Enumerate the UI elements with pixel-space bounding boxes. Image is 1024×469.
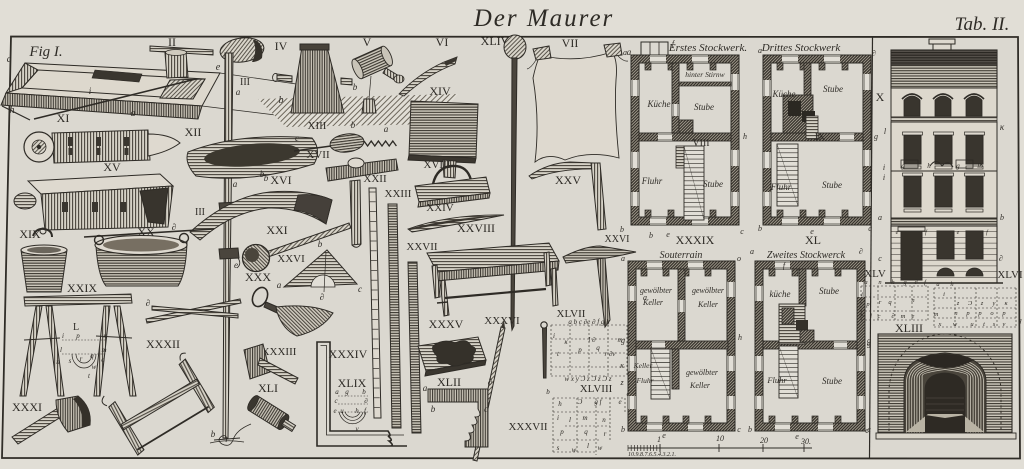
svg-text:c: c — [878, 254, 882, 263]
svg-text:a: a — [864, 279, 867, 286]
svg-text:a: a — [384, 124, 389, 134]
svg-text:r ∂v: r ∂v — [604, 350, 616, 358]
svg-text:i: i — [62, 332, 64, 340]
svg-text:Küche: Küche — [772, 89, 796, 99]
svg-text:e: e — [234, 260, 238, 270]
svg-text:b: b — [211, 429, 216, 439]
svg-text:30.: 30. — [800, 437, 811, 446]
svg-text:VI: VI — [436, 35, 449, 49]
svg-text:V: V — [363, 35, 372, 49]
svg-text:∂: ∂ — [172, 222, 176, 232]
svg-text:Fluhr: Fluhr — [635, 376, 653, 385]
svg-text:q: q — [90, 352, 94, 360]
svg-text:κ: κ — [620, 361, 624, 370]
svg-text:XVIII: XVIII — [424, 159, 451, 171]
svg-text:XXVII: XXVII — [406, 241, 437, 253]
svg-text:y: y — [992, 300, 996, 307]
svg-text:XV: XV — [103, 160, 121, 174]
svg-text:m: m — [101, 346, 106, 354]
svg-text:i: i — [883, 173, 885, 182]
svg-text:Erstes Stockwerk.: Erstes Stockwerk. — [668, 42, 747, 54]
svg-text:n: n — [954, 310, 957, 317]
svg-text:b: b — [748, 425, 752, 434]
svg-text:g: g — [874, 132, 878, 141]
svg-text:g f: g f — [594, 398, 602, 406]
svg-text:c: c — [295, 133, 299, 143]
svg-text:a: a — [621, 254, 625, 263]
svg-text:h: h — [558, 400, 562, 408]
svg-text:h: h — [743, 132, 747, 141]
svg-text:Fluhr: Fluhr — [641, 176, 663, 186]
svg-text:XXXIII: XXXIII — [262, 346, 297, 358]
svg-text:z: z — [956, 300, 960, 307]
svg-text:q: q — [584, 428, 588, 436]
svg-text:∂: ∂ — [872, 49, 876, 58]
svg-text:IV: IV — [275, 39, 288, 53]
svg-text:Fig I.: Fig I. — [28, 44, 62, 60]
svg-text:b: b — [353, 82, 358, 92]
svg-text:i: i — [861, 291, 863, 298]
svg-text:c: c — [868, 224, 872, 233]
svg-text:r: r — [604, 430, 607, 438]
svg-text:XLI: XLI — [258, 381, 278, 395]
svg-text:Stube: Stube — [823, 84, 843, 94]
svg-text:XXXIX: XXXIX — [676, 233, 715, 247]
svg-text:e: e — [666, 230, 670, 239]
svg-text:a: a — [878, 213, 882, 222]
svg-text:b: b — [279, 95, 284, 106]
svg-text:XIII: XIII — [308, 120, 327, 132]
svg-text:e: e — [618, 398, 621, 406]
svg-text:VII: VII — [562, 36, 579, 50]
svg-text:∂: ∂ — [320, 292, 324, 302]
svg-text:∂: ∂ — [364, 397, 368, 405]
svg-text:a: a — [277, 280, 282, 290]
svg-text:b: b — [621, 425, 625, 434]
svg-text:e: e — [957, 230, 960, 236]
svg-text:w x y Ɔ z Ɔ z Ɔ z: w x y Ɔ z Ɔ z Ɔ z — [564, 375, 611, 383]
svg-text:p: p — [75, 332, 80, 340]
svg-text:r: r — [80, 355, 83, 363]
svg-text:XLIII: XLIII — [895, 321, 923, 335]
svg-text:g: g — [867, 339, 871, 348]
svg-text:XLVI: XLVI — [997, 269, 1023, 281]
svg-text:b: b — [362, 388, 366, 396]
svg-text:b: b — [649, 231, 653, 240]
svg-text:VIII: VIII — [692, 138, 709, 149]
svg-text:∂: ∂ — [146, 298, 150, 308]
svg-text:l: l — [569, 416, 571, 424]
svg-text:h: h — [355, 407, 359, 415]
svg-text:gewölbter: gewölbter — [640, 286, 673, 295]
svg-text:w: w — [92, 363, 97, 371]
svg-text:m: m — [582, 414, 587, 422]
svg-text:p: p — [577, 346, 582, 354]
svg-text:c: c — [740, 227, 744, 236]
svg-text:l: l — [870, 313, 872, 320]
svg-text:κ: κ — [1000, 122, 1005, 132]
svg-text:i: i — [883, 163, 885, 172]
svg-text:g: g — [621, 336, 625, 345]
svg-text:XXXIV: XXXIV — [329, 347, 368, 361]
svg-text:a: a — [236, 87, 241, 97]
svg-text:XXXII: XXXII — [146, 337, 180, 351]
svg-text:b: b — [758, 224, 762, 233]
svg-text:w: w — [572, 446, 577, 454]
svg-text:z: z — [980, 300, 984, 307]
svg-text:g: g — [956, 162, 960, 170]
svg-text:b: b — [546, 388, 550, 396]
svg-text:b: b — [264, 173, 269, 183]
svg-text:n: n — [911, 297, 914, 304]
svg-text:Stube: Stube — [819, 286, 839, 296]
svg-text:h: h — [927, 162, 931, 170]
svg-text:XXVI: XXVI — [605, 234, 630, 245]
svg-text:1: 1 — [657, 435, 661, 444]
svg-text:XLVIII: XLVIII — [580, 383, 613, 395]
svg-text:s: s — [69, 357, 72, 365]
svg-text:n: n — [878, 279, 881, 286]
svg-text:XIV: XIV — [429, 84, 451, 98]
svg-text:XXVIII: XXVIII — [457, 221, 495, 235]
svg-text:e: e — [662, 431, 666, 440]
svg-text:XL: XL — [805, 233, 821, 247]
svg-text:w: w — [598, 444, 603, 452]
svg-text:Ɔ: Ɔ — [968, 300, 973, 307]
svg-text:Fluhr: Fluhr — [766, 375, 787, 385]
svg-text:Keller: Keller — [642, 298, 664, 307]
svg-text:a b c ∂e ∂ f g h: a b c ∂e ∂ f g h — [568, 318, 610, 326]
svg-text:∂: ∂ — [488, 377, 492, 387]
svg-text:∂: ∂ — [891, 313, 894, 320]
svg-text:a: a — [750, 247, 754, 256]
svg-text:c: c — [358, 284, 362, 294]
svg-text:b: b — [318, 239, 323, 249]
svg-text:e: e — [912, 313, 915, 320]
svg-text:Zweites Stockwerck: Zweites Stockwerck — [767, 250, 846, 261]
svg-text:i: i — [557, 414, 559, 422]
svg-text:Stube: Stube — [822, 180, 842, 190]
svg-text:e: e — [795, 432, 799, 441]
svg-text:XXVI: XXVI — [277, 253, 305, 265]
svg-text:c: c — [484, 404, 488, 414]
svg-text:a: a — [758, 46, 762, 55]
svg-text:m: m — [934, 311, 939, 318]
svg-text:∂: ∂ — [999, 254, 1003, 263]
svg-text:t: t — [983, 321, 985, 328]
svg-text:Ɔ: Ɔ — [578, 398, 583, 406]
svg-text:c: c — [7, 54, 12, 65]
svg-text:h: h — [10, 105, 15, 116]
svg-text:i: i — [553, 332, 555, 340]
svg-text:h: h — [891, 279, 894, 286]
svg-text:m: m — [901, 313, 906, 320]
svg-text:c: c — [737, 425, 741, 434]
svg-text:gewölbter: gewölbter — [692, 286, 725, 295]
svg-text:gewölbter: gewölbter — [686, 368, 719, 377]
svg-text:XXIII: XXIII — [385, 188, 412, 200]
svg-text:o: o — [101, 356, 105, 364]
svg-text:Küche: Küche — [647, 99, 671, 109]
svg-text:a: a — [233, 179, 238, 189]
svg-text:∂: ∂ — [914, 279, 917, 286]
svg-text:XXXVII: XXXVII — [508, 421, 547, 433]
svg-text:e: e — [333, 407, 336, 415]
svg-text:XXXV: XXXV — [429, 317, 464, 331]
svg-text:a: a — [131, 108, 136, 119]
svg-text:q: q — [596, 344, 600, 352]
svg-text:c: c — [878, 313, 881, 320]
svg-text:10: 10 — [716, 434, 724, 443]
svg-text:XVII: XVII — [306, 149, 330, 161]
svg-text:h: h — [950, 281, 953, 288]
svg-text:a: a — [423, 383, 428, 393]
svg-text:XII: XII — [185, 125, 202, 139]
svg-text:XXII: XXII — [363, 173, 387, 185]
svg-text:XXI: XXI — [266, 223, 287, 237]
svg-text:n: n — [602, 416, 606, 424]
svg-text:l ∂: l ∂ — [588, 336, 596, 344]
svg-text:XXV: XXV — [555, 173, 581, 187]
svg-text:Keller: Keller — [697, 300, 719, 309]
svg-text:c: c — [867, 425, 871, 434]
svg-text:XXXI: XXXI — [12, 400, 42, 414]
svg-text:Stube: Stube — [822, 376, 842, 386]
svg-text:b: b — [260, 169, 265, 179]
svg-text:u: u — [340, 407, 344, 415]
svg-text:Keller: Keller — [689, 381, 711, 390]
svg-text:III: III — [240, 77, 250, 88]
svg-text:Fluhr: Fluhr — [770, 182, 792, 192]
svg-text:Stube: Stube — [694, 102, 714, 112]
svg-text:e: e — [216, 62, 221, 73]
svg-text:b: b — [351, 120, 356, 130]
svg-text:o: o — [737, 254, 741, 263]
svg-text:XXIX: XXIX — [67, 281, 97, 295]
svg-text:XVI: XVI — [270, 173, 291, 187]
svg-text:XXIV: XXIV — [426, 202, 454, 214]
svg-text:e: e — [896, 230, 899, 236]
svg-text:hinter Stirnw: hinter Stirnw — [685, 70, 724, 79]
svg-text:XXX: XXX — [245, 270, 271, 284]
svg-text:XLII: XLII — [437, 375, 461, 389]
svg-text:g: g — [345, 388, 349, 396]
svg-text:X: X — [876, 90, 885, 104]
svg-text:lb: lb — [977, 162, 983, 170]
svg-text:b: b — [1000, 213, 1004, 222]
svg-text:küche: küche — [770, 289, 791, 299]
svg-text:s: s — [557, 444, 560, 452]
svg-text:IX: IX — [815, 132, 826, 143]
svg-text:b: b — [431, 404, 436, 414]
svg-text:Stube: Stube — [703, 179, 723, 189]
svg-text:x: x — [938, 321, 942, 328]
svg-text:10.9.8.7.6.5.4.3.2.1.: 10.9.8.7.6.5.4.3.2.1. — [628, 451, 676, 458]
svg-text:h: h — [738, 333, 742, 342]
svg-text:a: a — [335, 388, 339, 396]
svg-text:III: III — [195, 207, 205, 218]
svg-text:a: a — [623, 48, 627, 57]
svg-text:Tab. II.: Tab. II. — [955, 14, 1010, 35]
svg-text:v: v — [1003, 321, 1006, 328]
svg-text:Souterrain: Souterrain — [660, 250, 703, 261]
svg-text:i: i — [943, 291, 945, 298]
svg-text:Der Maurer: Der Maurer — [473, 5, 615, 32]
svg-text:g: g — [901, 162, 905, 170]
svg-text:20: 20 — [760, 436, 768, 445]
svg-text:Drittes Stockwerk: Drittes Stockwerk — [761, 42, 842, 54]
svg-text:p: p — [559, 428, 564, 436]
svg-text:Keller: Keller — [633, 361, 653, 370]
svg-text:∂: ∂ — [859, 247, 863, 256]
svg-text:l: l — [1018, 298, 1020, 305]
svg-text:XI: XI — [57, 111, 70, 125]
svg-text:l: l — [587, 442, 589, 450]
svg-text:n: n — [56, 358, 60, 366]
svg-text:a: a — [936, 281, 939, 288]
svg-text:l: l — [60, 346, 62, 354]
svg-text:b: b — [620, 225, 624, 234]
svg-text:w: w — [953, 321, 958, 328]
